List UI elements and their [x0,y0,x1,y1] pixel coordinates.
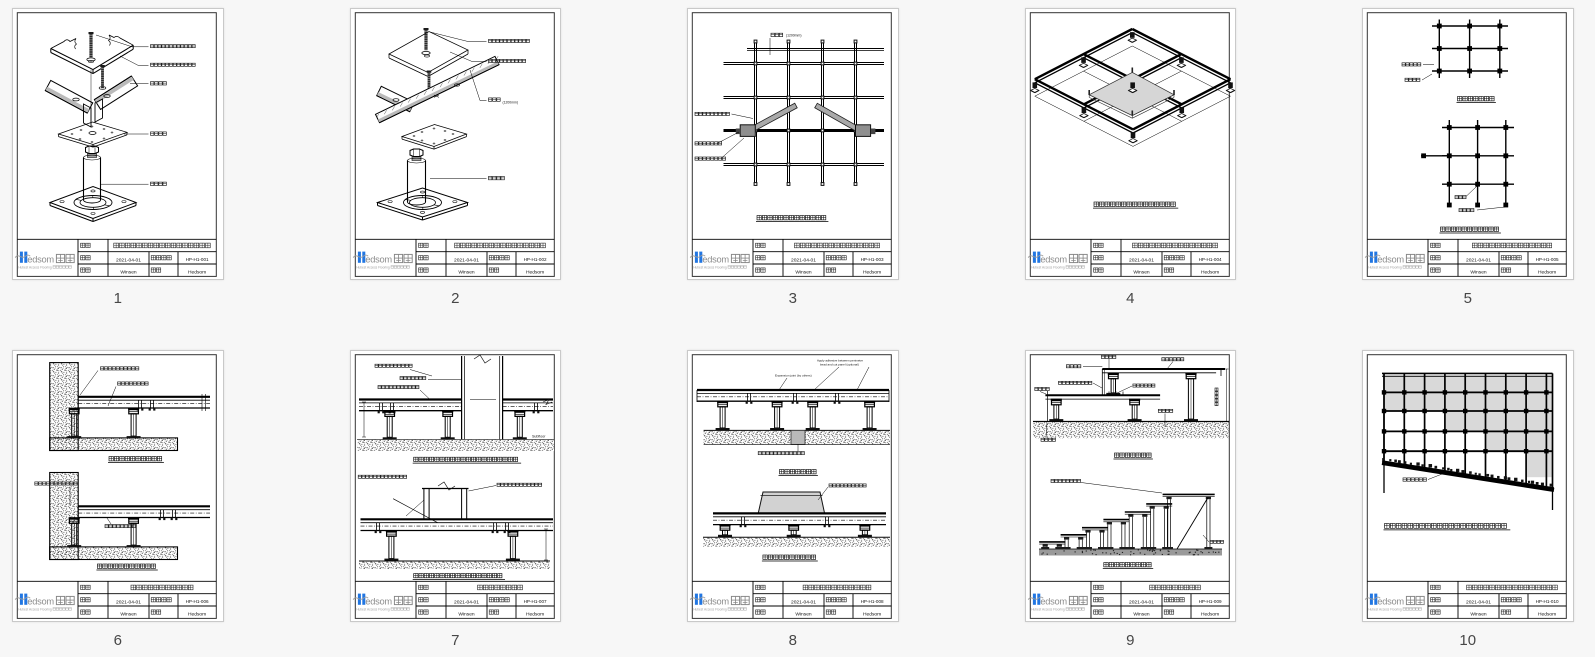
svg-text:Subfloor: Subfloor [532,434,546,438]
svg-text:HP-H1-007: HP-H1-007 [523,599,546,604]
svg-text:Hubest Access Flooring: Hubest Access Flooring [1368,608,1402,612]
svg-text:HP-H1-002: HP-H1-002 [523,257,546,262]
svg-text:Hedsom: Hedsom [863,612,881,618]
svg-text:Hedsom: Hedsom [1200,270,1218,276]
svg-text:HP-H1-005: HP-H1-005 [1536,257,1559,262]
svg-text:Hubest Access Flooring: Hubest Access Flooring [18,608,52,612]
svg-text:edsom: edsom [1040,597,1067,607]
svg-text:Hubest Access Flooring: Hubest Access Flooring [1368,266,1402,270]
svg-text:Winsen: Winsen [1133,270,1150,276]
svg-text:Hubest Access Flooring: Hubest Access Flooring [1031,608,1065,612]
svg-text:Hubest Access Flooring: Hubest Access Flooring [356,608,390,612]
svg-text:2021-04-01: 2021-04-01 [116,257,141,263]
svg-text:(1200mm): (1200mm) [786,34,801,38]
svg-text:Hubest Access Flooring: Hubest Access Flooring [693,266,727,270]
svg-text:Winsen: Winsen [120,612,137,618]
svg-text:2021-04-01: 2021-04-01 [1466,257,1491,263]
svg-text:edsom: edsom [27,255,54,265]
svg-text:Hubest Access Flooring: Hubest Access Flooring [356,266,390,270]
svg-text:Hedsom: Hedsom [1538,270,1556,276]
svg-text:Expansion joint (by others): Expansion joint (by others) [775,374,812,378]
svg-text:2021-04-01: 2021-04-01 [791,599,816,605]
svg-text:edsom: edsom [365,255,392,265]
svg-text:HP-H1-006: HP-H1-006 [186,599,209,604]
svg-text:edsom: edsom [1377,255,1404,265]
svg-text:HP-H1-003: HP-H1-003 [861,257,884,262]
svg-text:2021-04-01: 2021-04-01 [791,257,816,263]
svg-text:Hubest Access Flooring: Hubest Access Flooring [1031,266,1065,270]
svg-text:edsom: edsom [365,597,392,607]
svg-text:HP-H1-008: HP-H1-008 [861,599,884,604]
svg-text:edsom: edsom [27,597,54,607]
svg-text:Hedsom: Hedsom [188,612,206,618]
svg-text:HP-H1-004: HP-H1-004 [1198,257,1221,262]
svg-text:Winsen: Winsen [1470,612,1487,618]
svg-text:Hubest Access Flooring: Hubest Access Flooring [693,608,727,612]
svg-text:Hubest Access Flooring: Hubest Access Flooring [18,266,52,270]
svg-text:2021-04-01: 2021-04-01 [116,599,141,605]
svg-text:Hedsom: Hedsom [525,612,543,618]
svg-text:HP-H1-001: HP-H1-001 [186,257,209,262]
svg-text:Winsen: Winsen [458,612,475,618]
svg-text:2021-04-01: 2021-04-01 [1128,257,1153,263]
svg-text:Hedsom: Hedsom [1200,612,1218,618]
svg-text:Winsen: Winsen [120,270,137,276]
svg-text:Hedsom: Hedsom [1538,612,1556,618]
svg-text:edsom: edsom [702,255,729,265]
svg-text:2021-04-01: 2021-04-01 [453,257,478,263]
svg-text:(1200mm): (1200mm) [502,101,517,105]
svg-text:HP-H1-010: HP-H1-010 [1536,599,1559,604]
svg-text:edsom: edsom [1040,255,1067,265]
svg-text:Hedsom: Hedsom [863,270,881,276]
svg-text:Winsen: Winsen [795,612,812,618]
svg-text:2021-04-01: 2021-04-01 [1128,599,1153,605]
svg-text:2021-04-01: 2021-04-01 [453,599,478,605]
svg-text:Winsen: Winsen [1470,270,1487,276]
svg-text:HP-H1-009: HP-H1-009 [1198,599,1221,604]
svg-text:Hedsom: Hedsom [188,270,206,276]
svg-text:bead and cut panel (optional): bead and cut panel (optional) [820,362,859,366]
svg-text:Hedsom: Hedsom [525,270,543,276]
svg-text:Winsen: Winsen [795,270,812,276]
svg-text:edsom: edsom [702,597,729,607]
svg-text:Winsen: Winsen [458,270,475,276]
svg-text:edsom: edsom [1377,597,1404,607]
svg-text:Winsen: Winsen [1133,612,1150,618]
svg-text:2021-04-01: 2021-04-01 [1466,599,1491,605]
